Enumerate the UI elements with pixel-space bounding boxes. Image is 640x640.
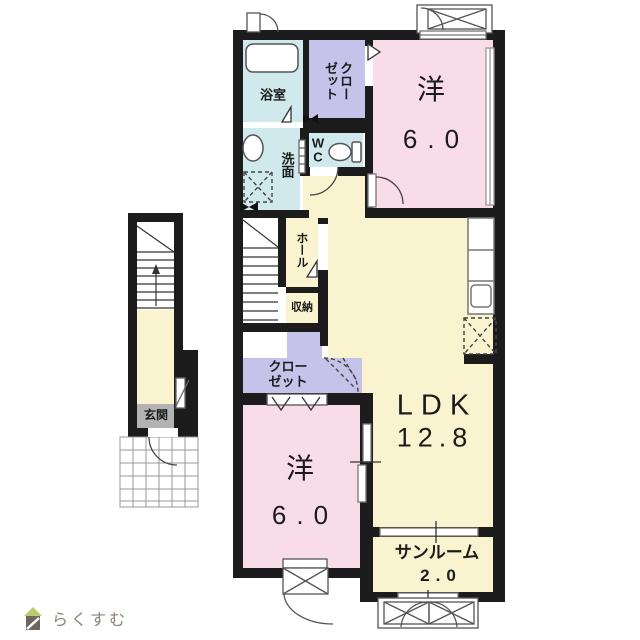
entrance-label: 玄関 bbox=[144, 409, 168, 423]
toilet-icon bbox=[329, 142, 361, 162]
balcony-top bbox=[417, 5, 492, 39]
bedroom-top-size: 6.0 bbox=[403, 125, 469, 155]
bedroom-bottom-name: 洋 bbox=[286, 453, 314, 485]
kitchen-sink-icon bbox=[471, 285, 491, 307]
washroom-accordion-door bbox=[299, 140, 305, 173]
closet-top-label: クロー ゼット bbox=[322, 62, 352, 101]
porch-grid bbox=[120, 437, 198, 507]
hall-label: ホール bbox=[294, 232, 308, 268]
bathtub-icon bbox=[246, 44, 298, 72]
stairs-main bbox=[243, 220, 278, 320]
bedroom-bottom-exit-door bbox=[283, 559, 333, 624]
bedroom-top-window bbox=[486, 48, 494, 205]
sunroom-name: サンルーム bbox=[395, 543, 480, 563]
washroom-label: 洗面 bbox=[279, 152, 294, 178]
bathroom-label: 浴室 bbox=[260, 89, 286, 104]
floorplan-drawing bbox=[0, 0, 640, 640]
entry-hall-floor bbox=[137, 310, 174, 404]
kitchen-counter bbox=[468, 218, 494, 314]
closet-top-label-line1: クロー bbox=[337, 62, 352, 101]
bedroom-top-name: 洋 bbox=[417, 74, 445, 106]
house-icon bbox=[20, 603, 46, 633]
corridor-floor bbox=[303, 176, 370, 218]
balcony-bottom bbox=[378, 598, 478, 628]
bedroom-bottom-floor bbox=[243, 405, 360, 568]
bedroom-bottom-size: 6.0 bbox=[272, 501, 338, 531]
floorplan-image: 浴室 クロー ゼット WC 洗面 洋 6.0 ホール 収納 クロー ゼット LD… bbox=[0, 0, 640, 640]
logo-text: らくすむ bbox=[52, 606, 128, 630]
ldk-name: LDK bbox=[397, 389, 477, 422]
closet-top-label-line2: ゼット bbox=[322, 62, 337, 101]
rakusumu-logo: らくすむ bbox=[20, 603, 128, 633]
closet-mid-label-line1: クロー bbox=[268, 360, 307, 375]
closet-mid-label: クロー ゼット bbox=[268, 360, 307, 390]
closet-mid-label-line2: ゼット bbox=[268, 375, 307, 390]
wc-label: WC bbox=[311, 136, 326, 163]
sunroom-size: 2.0 bbox=[420, 566, 462, 586]
washbasin-icon bbox=[243, 135, 263, 161]
bathroom-vent-window bbox=[247, 13, 278, 32]
ldk-size: 12.8 bbox=[397, 422, 474, 453]
closet-mid-upper-floor bbox=[287, 332, 322, 358]
storage-label: 収納 bbox=[291, 302, 313, 315]
